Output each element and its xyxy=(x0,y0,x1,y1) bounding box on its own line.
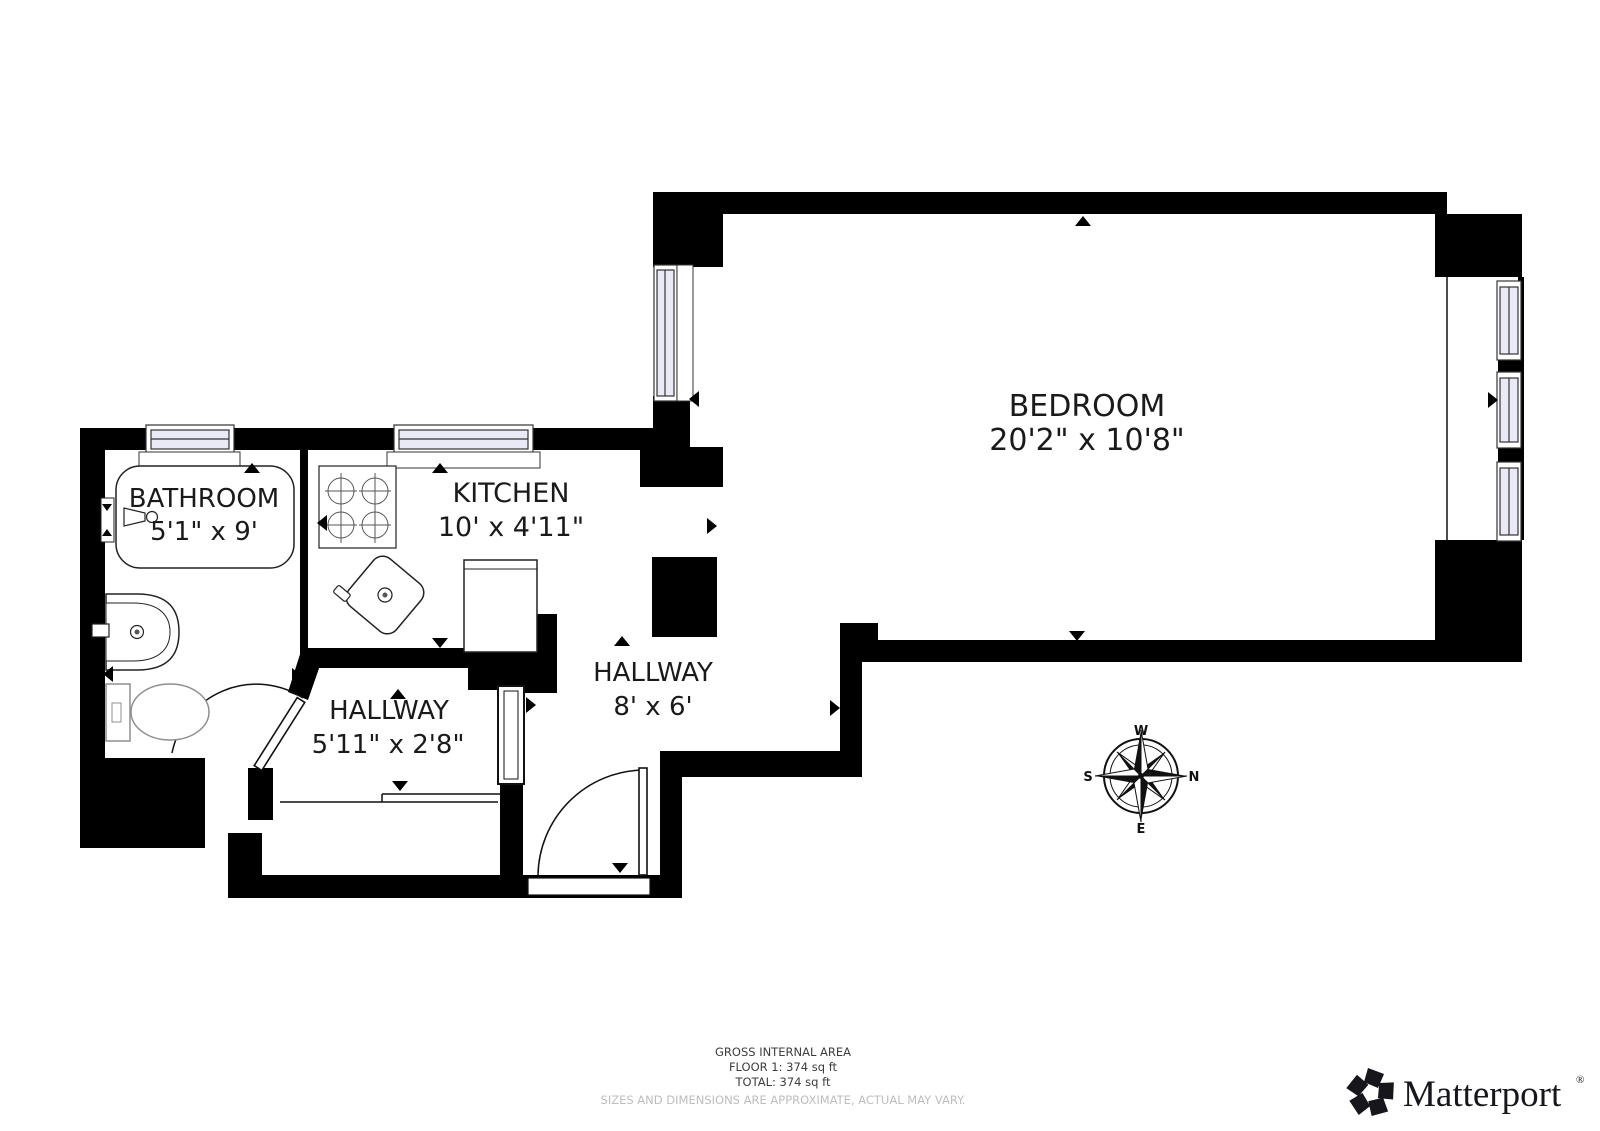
toilet-icon xyxy=(106,684,209,741)
floor-plan-canvas: BATHROOM 5'1" x 9' KITCHEN 10' x 4'11" B… xyxy=(0,0,1600,1131)
bedroom-left-window xyxy=(654,265,693,401)
closet-sliding-doors xyxy=(280,794,500,802)
compass-west-label: W xyxy=(1134,724,1148,739)
stove-icon xyxy=(319,466,396,548)
kitchen-dimensions: 10' x 4'11" xyxy=(438,512,584,543)
compass-north-label: N xyxy=(1189,770,1200,785)
bathroom-label: BATHROOM xyxy=(129,484,279,514)
hallway-entry-label: HALLWAY xyxy=(593,658,713,688)
kitchen-window xyxy=(387,425,540,468)
room-hallway-small: HALLWAY 5'11" x 2'8" xyxy=(312,696,465,760)
hallway-small-dimensions: 5'11" x 2'8" xyxy=(312,730,465,760)
walls xyxy=(80,192,1524,898)
hallway-cased-opening xyxy=(498,686,524,784)
bathroom-sink-icon xyxy=(92,594,179,670)
footer-total-area: TOTAL: 374 sq ft xyxy=(735,1075,831,1089)
hallway-entry-dimensions: 8' x 6' xyxy=(613,692,692,722)
compass-east-label: E xyxy=(1137,822,1146,837)
compass-south-label: S xyxy=(1083,770,1092,785)
hallway-small-label: HALLWAY xyxy=(329,696,449,726)
footer-floor1-area: FLOOR 1: 374 sq ft xyxy=(729,1060,838,1074)
compass-rose-icon: W N E S xyxy=(1083,724,1199,837)
bedroom-label: BEDROOM xyxy=(1009,389,1166,424)
bedroom-bay-windows xyxy=(1497,281,1521,541)
room-bedroom: BEDROOM 20'2" x 10'8" xyxy=(989,389,1184,458)
registered-trademark-symbol: ® xyxy=(1576,1074,1584,1086)
room-hallway-entry: HALLWAY 8' x 6' xyxy=(593,658,713,722)
room-kitchen: KITCHEN 10' x 4'11" xyxy=(438,478,584,543)
kitchen-sink-icon xyxy=(333,544,429,638)
matterport-pinwheel-icon xyxy=(1345,1068,1399,1121)
bedroom-dimensions: 20'2" x 10'8" xyxy=(989,423,1184,458)
kitchen-counter-icon xyxy=(464,560,537,652)
footer-gross-internal-area: GROSS INTERNAL AREA xyxy=(715,1045,851,1059)
footer: GROSS INTERNAL AREA FLOOR 1: 374 sq ft T… xyxy=(601,1045,966,1107)
kitchen-label: KITCHEN xyxy=(453,478,570,509)
matterport-wordmark: Matterport xyxy=(1403,1074,1562,1115)
footer-disclaimer: SIZES AND DIMENSIONS ARE APPROXIMATE, AC… xyxy=(601,1093,966,1107)
matterport-logo: Matterport ® xyxy=(1345,1068,1584,1121)
bathroom-window xyxy=(139,425,240,468)
floor-plan-page: BATHROOM 5'1" x 9' KITCHEN 10' x 4'11" B… xyxy=(0,0,1600,1131)
bathroom-dimensions: 5'1" x 9' xyxy=(150,517,258,547)
